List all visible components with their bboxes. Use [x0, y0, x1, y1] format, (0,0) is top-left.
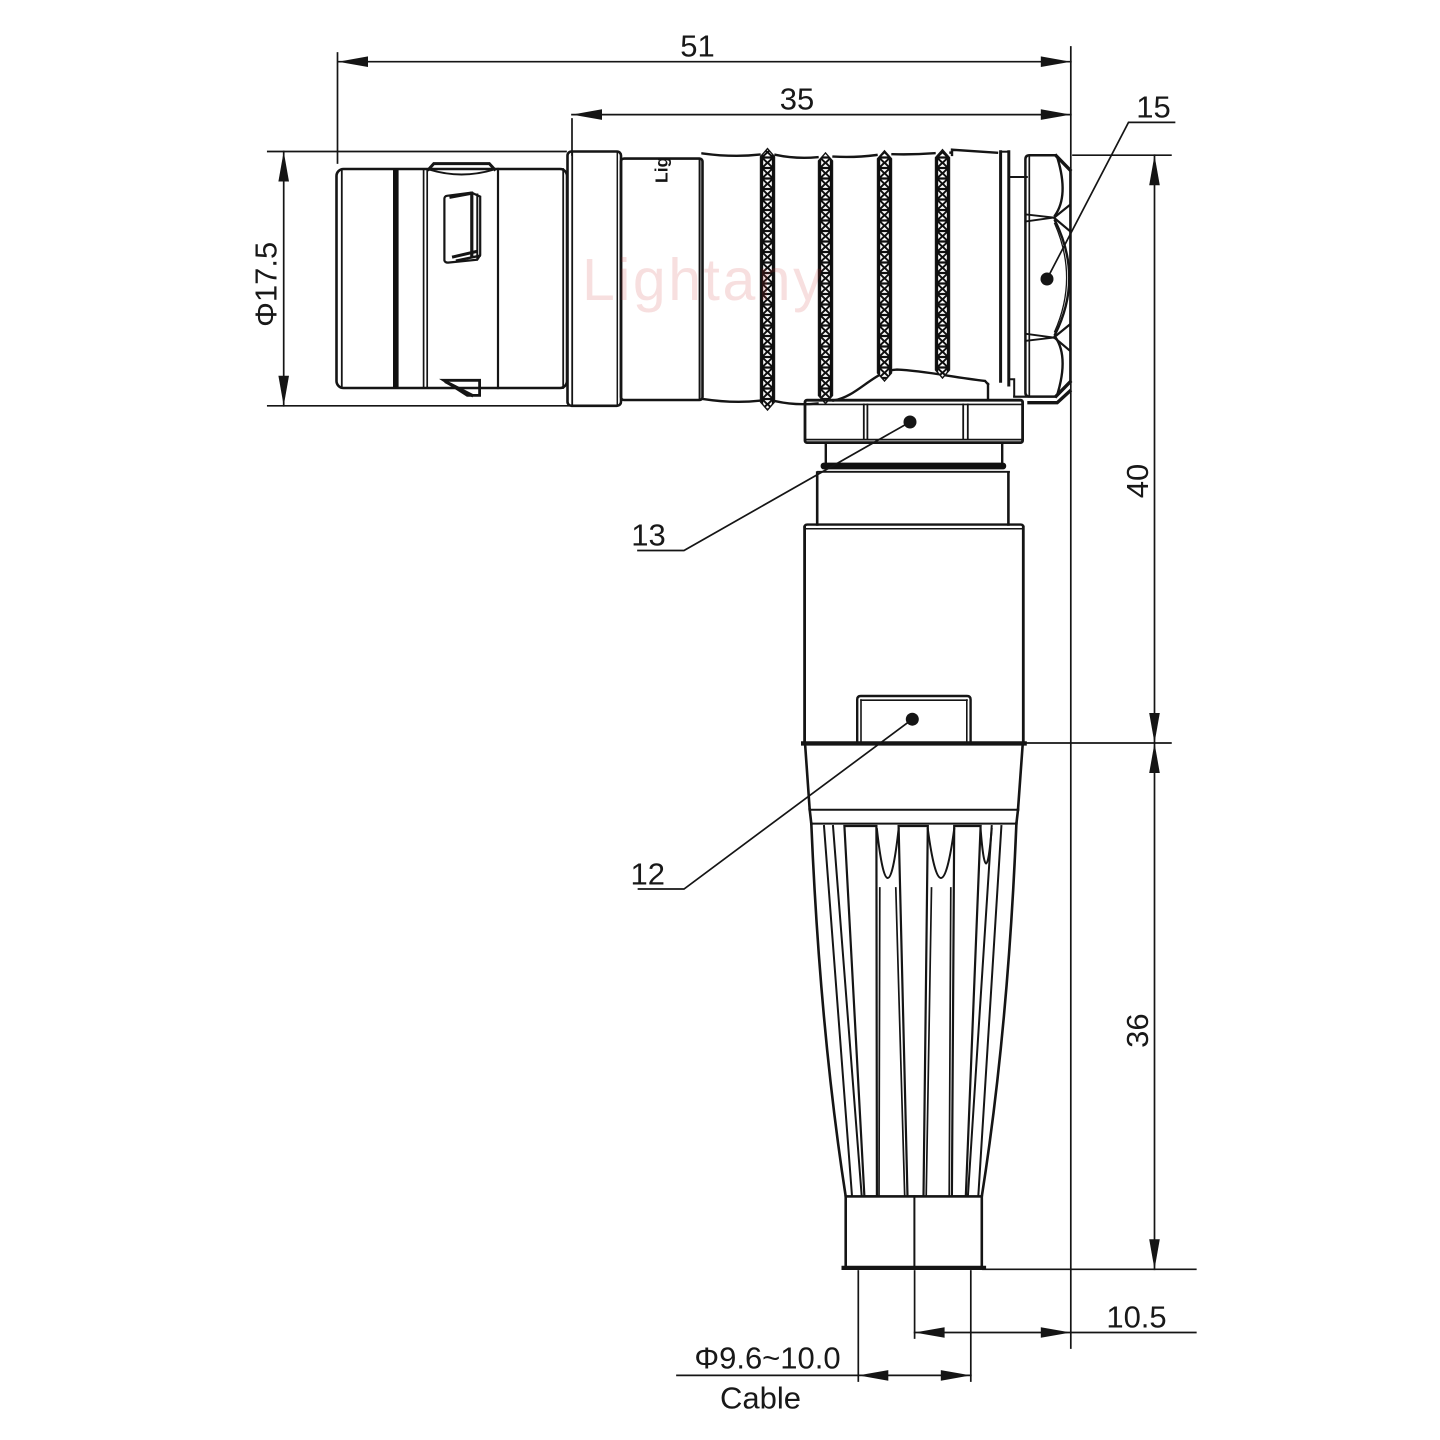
svg-text:51: 51 [680, 29, 714, 64]
svg-text:35: 35 [780, 82, 814, 117]
svg-text:10.5: 10.5 [1106, 1300, 1166, 1335]
svg-text:Φ9.6~10.0: Φ9.6~10.0 [694, 1341, 840, 1376]
svg-text:Lightany: Lightany [582, 247, 825, 313]
svg-text:36: 36 [1120, 1013, 1155, 1047]
svg-text:15: 15 [1136, 89, 1170, 124]
svg-text:Lig: Lig [652, 157, 672, 183]
svg-text:40: 40 [1120, 464, 1155, 498]
svg-text:13: 13 [631, 518, 665, 553]
svg-text:Φ17.5: Φ17.5 [249, 242, 284, 327]
svg-text:12: 12 [631, 856, 665, 891]
svg-text:Cable: Cable [720, 1381, 801, 1416]
